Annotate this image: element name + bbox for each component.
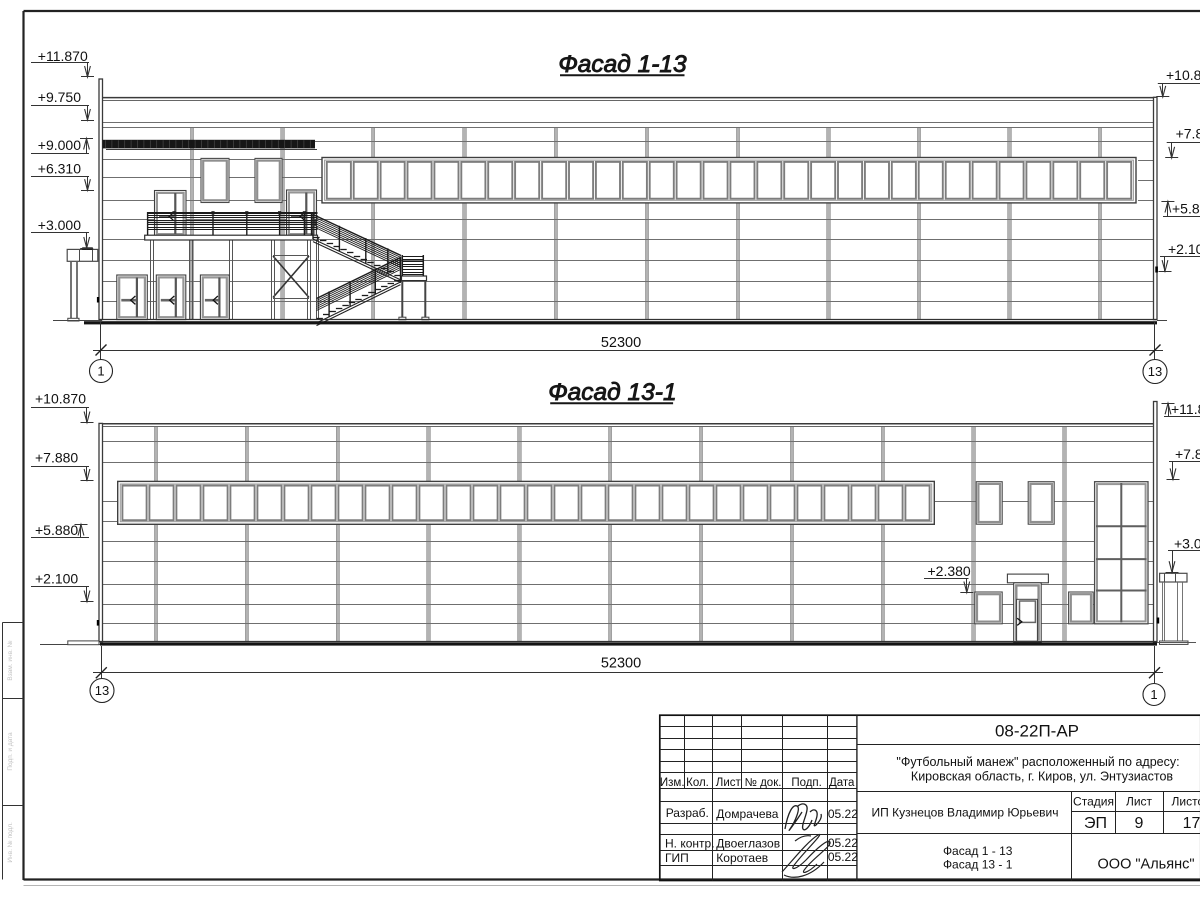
svg-text:Инв. № подл.: Инв. № подл.	[7, 822, 14, 863]
svg-text:+2.100: +2.100	[35, 571, 78, 587]
svg-text:ИП Кузнецов Владимир Юрьевич: ИП Кузнецов Владимир Юрьевич	[872, 806, 1059, 820]
svg-text:№ док.: № док.	[745, 777, 782, 789]
svg-text:Н. контр.: Н. контр.	[665, 837, 715, 851]
svg-text:+7.880: +7.880	[1175, 446, 1200, 462]
svg-text:Двоеглазов: Двоеглазов	[716, 837, 780, 851]
svg-text:+7.880: +7.880	[35, 450, 78, 466]
svg-text:Домрачева: Домрачева	[716, 807, 778, 821]
svg-text:Дата: Дата	[829, 777, 855, 789]
svg-text:1: 1	[97, 364, 104, 379]
svg-text:9: 9	[1135, 815, 1144, 832]
svg-text:+5.880: +5.880	[35, 522, 78, 538]
svg-text:ГИП: ГИП	[665, 851, 689, 865]
svg-text:+3.000: +3.000	[1174, 536, 1200, 552]
svg-text:Изм.: Изм.	[660, 777, 685, 789]
svg-text:Лист: Лист	[716, 777, 742, 789]
svg-text:+10.870: +10.870	[1166, 67, 1200, 83]
svg-text:13: 13	[1148, 364, 1162, 379]
svg-text:52300: 52300	[601, 335, 641, 351]
svg-text:+3.000: +3.000	[38, 217, 81, 233]
svg-text:Кировская область, г. Киров, у: Кировская область, г. Киров, ул. Энтузиа…	[911, 770, 1173, 784]
svg-text:+2.100: +2.100	[1168, 241, 1200, 257]
svg-text:Фасад 13-1: Фасад 13-1	[548, 379, 676, 406]
svg-text:ООО "Альянс": ООО "Альянс"	[1098, 857, 1195, 873]
svg-text:Фасад 13 - 1: Фасад 13 - 1	[943, 858, 1013, 872]
svg-text:05.22: 05.22	[828, 836, 858, 850]
svg-text:Подп.: Подп.	[791, 777, 822, 789]
svg-text:Разраб.: Разраб.	[666, 806, 709, 820]
svg-text:+11.870: +11.870	[1171, 401, 1200, 417]
svg-text:+7.880: +7.880	[1176, 126, 1200, 142]
svg-text:+2.380: +2.380	[928, 563, 971, 579]
svg-text:05.22: 05.22	[828, 807, 858, 821]
svg-text:Взам. инв. №: Взам. инв. №	[7, 640, 14, 680]
svg-text:Стадия: Стадия	[1073, 795, 1114, 809]
svg-text:Фасад 1-13: Фасад 1-13	[558, 51, 687, 78]
svg-text:17: 17	[1183, 815, 1200, 832]
svg-text:Лист: Лист	[1126, 795, 1153, 809]
svg-text:1: 1	[1150, 687, 1157, 702]
svg-text:+10.870: +10.870	[35, 391, 86, 407]
svg-text:+9.000: +9.000	[38, 137, 81, 153]
svg-text:08-22П-АР: 08-22П-АР	[995, 722, 1079, 741]
svg-text:"Футбольный манеж" расположенн: "Футбольный манеж" расположенный по адре…	[896, 755, 1179, 769]
svg-text:Кол.: Кол.	[686, 777, 709, 789]
svg-text:Листов: Листов	[1172, 795, 1200, 809]
svg-text:+11.870: +11.870	[38, 48, 88, 64]
svg-text:+5.840: +5.840	[1172, 200, 1200, 216]
svg-text:ЭП: ЭП	[1084, 815, 1107, 832]
svg-text:13: 13	[95, 683, 109, 698]
svg-text:Коротаев: Коротаев	[716, 851, 768, 865]
svg-text:+9.750: +9.750	[38, 89, 81, 105]
svg-text:Подп. и дата: Подп. и дата	[7, 732, 14, 771]
svg-text:+6.310: +6.310	[38, 160, 81, 176]
svg-text:52300: 52300	[601, 656, 641, 672]
svg-text:05.22: 05.22	[828, 850, 858, 864]
svg-text:Фасад 1 - 13: Фасад 1 - 13	[943, 844, 1013, 858]
